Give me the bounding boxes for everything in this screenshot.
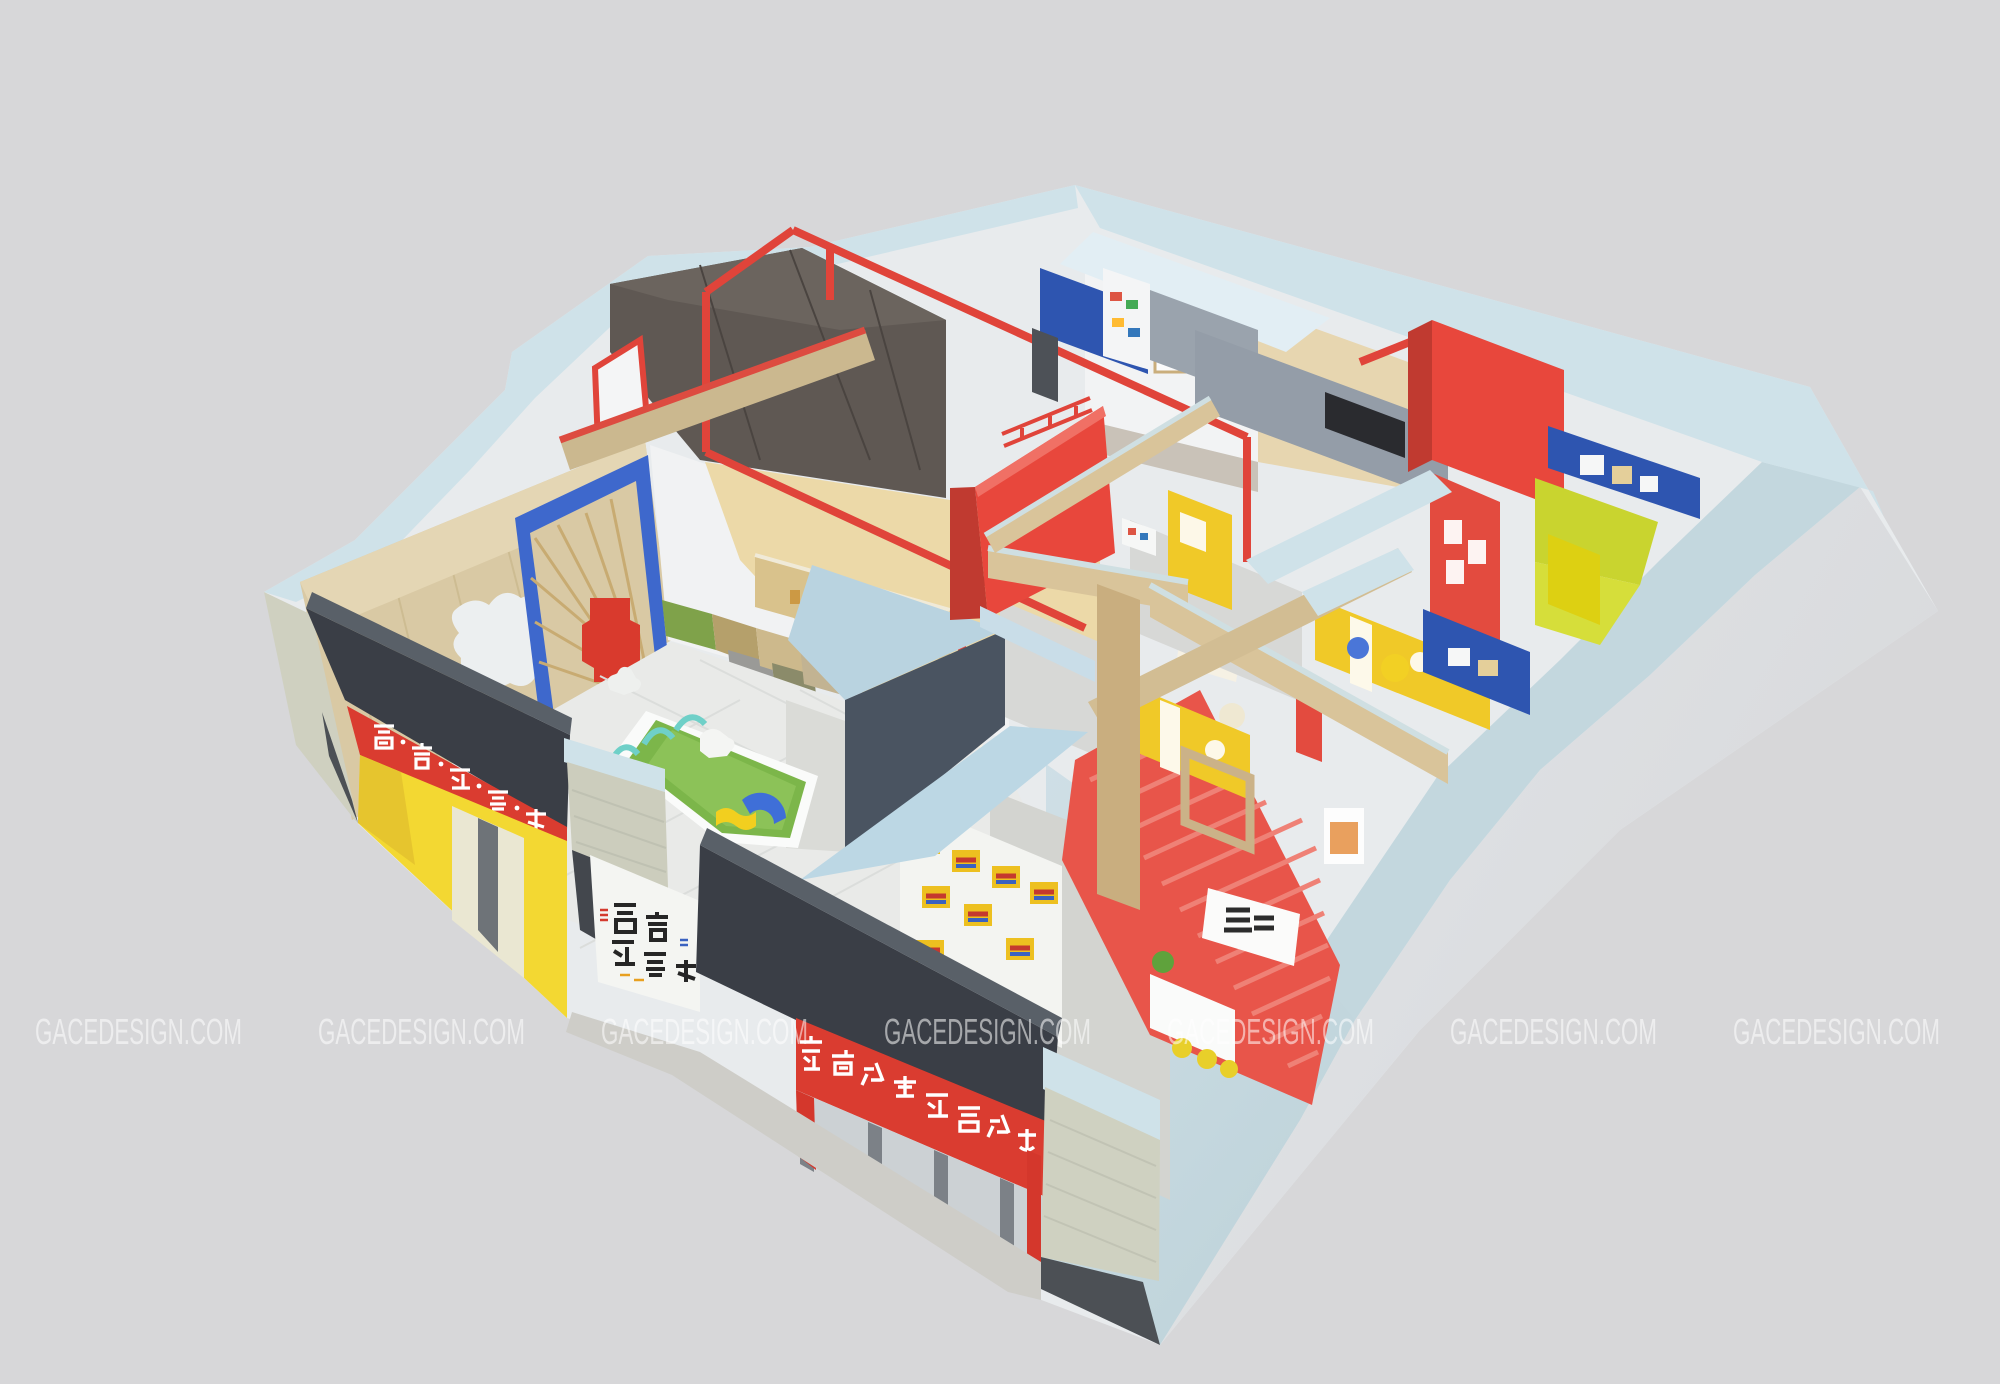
svg-text:GACEDESIGN.COM: GACEDESIGN.COM: [1733, 1011, 1940, 1052]
svg-text:GACEDESIGN.COM: GACEDESIGN.COM: [35, 1011, 242, 1052]
svg-text:GACEDESIGN.COM: GACEDESIGN.COM: [601, 1011, 808, 1052]
svg-text:GACEDESIGN.COM: GACEDESIGN.COM: [318, 1011, 525, 1052]
svg-text:GACEDESIGN.COM: GACEDESIGN.COM: [1450, 1011, 1657, 1052]
svg-text:GACEDESIGN.COM: GACEDESIGN.COM: [884, 1011, 1091, 1052]
svg-text:GACEDESIGN.COM: GACEDESIGN.COM: [1167, 1011, 1374, 1052]
